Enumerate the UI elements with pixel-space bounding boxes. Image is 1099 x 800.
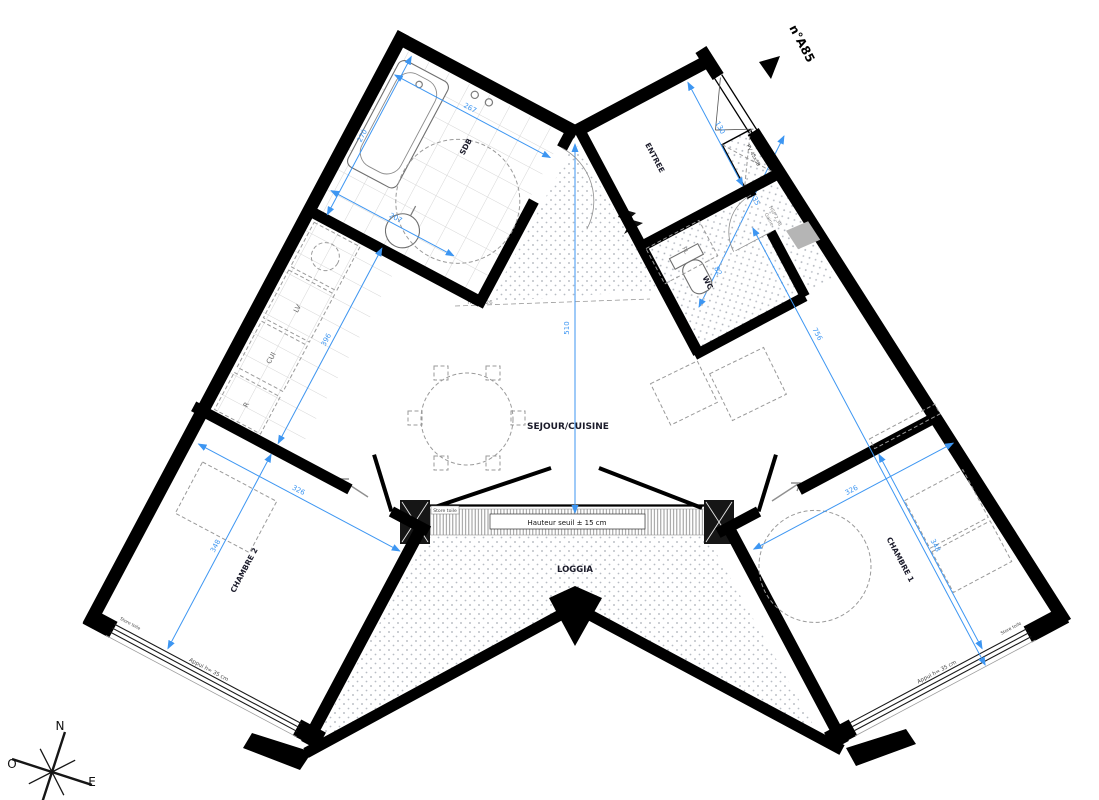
ch1-turning-circle [739, 491, 890, 642]
chambre1-label: CHAMBRE 1 [885, 536, 916, 584]
window-glazing [853, 633, 1030, 727]
left-wing: SDB LV CUI R CHAMBRE 2 Appui h= 35 cm St… [79, 28, 633, 749]
store-toile-label-band: Store toile [433, 508, 457, 514]
entree-label: ENTREE [643, 141, 666, 174]
wall-top-right-wing [576, 59, 711, 131]
window-glazing [850, 629, 1027, 723]
window-sill [106, 635, 297, 736]
dim-ch1-326: 326 [844, 483, 860, 497]
table-1 [651, 361, 718, 425]
dim-510: 510 [563, 321, 571, 334]
dim-ch2-326: 326 [291, 484, 307, 498]
window-glazing [110, 632, 297, 732]
dining-table [421, 373, 513, 465]
sejour-label: SEJOUR/CUISINE [527, 422, 609, 432]
compass-rose: N O E [7, 719, 97, 800]
window-glazing [112, 628, 299, 728]
floor-plan-drawing: Hauteur seuil ± 15 cm Store toile LOGGIA… [0, 0, 1099, 800]
door-arrow-right [772, 483, 800, 501]
ch1-door-leaf [739, 455, 796, 512]
wall-outer-right-b [753, 110, 1065, 643]
wall-outer-right-a [701, 48, 718, 77]
right-wing: n°A85 PL PV 45x58 Gaine HSP 2,38 ENTREE … [514, 3, 1099, 749]
unit-number-label: n°A85 [786, 22, 817, 64]
compass-west: O [7, 757, 16, 771]
loggia-door-leaf-left [432, 468, 551, 508]
wall-ch1-north-b [799, 416, 939, 490]
entry-arrow-marker [759, 56, 780, 79]
compass-east: E [88, 775, 96, 789]
window-sill [855, 640, 1035, 736]
table-2 [710, 347, 787, 420]
loggia-label: LOGGIA [557, 565, 593, 575]
dining-chairs [408, 366, 525, 470]
compass-star [7, 727, 97, 800]
chambre2-label: CHAMBRE 2 [229, 546, 260, 594]
ch1-closet-2 [932, 521, 1012, 593]
store-toile-right: Store toile [1000, 621, 1023, 637]
threshold-label: Hauteur seuil ± 15 cm [528, 519, 607, 527]
loggia-door-leaf-right [599, 468, 702, 508]
window-glazing [114, 624, 301, 724]
window-glazing [855, 637, 1032, 731]
compass-north: N [56, 719, 65, 733]
floor-plan: Hauteur seuil ± 15 cm Store toile LOGGIA… [0, 0, 1099, 800]
wall-sdb-east-a [562, 130, 571, 148]
store-toile-left: Store toile [119, 616, 142, 632]
dim-ch2-348: 348 [209, 538, 222, 554]
